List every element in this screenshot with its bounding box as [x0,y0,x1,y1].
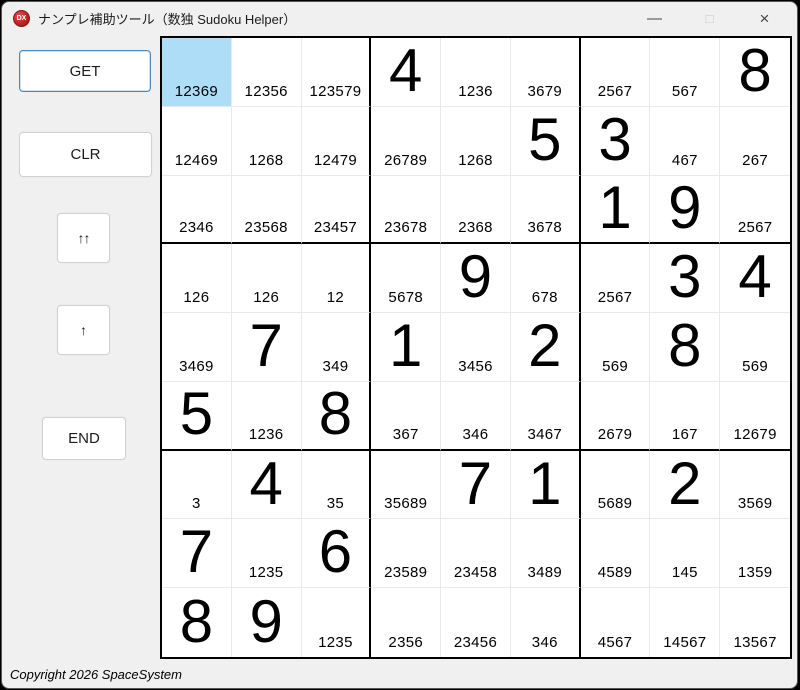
cell-candidates: 23457 [302,219,370,236]
sudoku-cell-r2c8[interactable]: 467 [650,107,720,176]
cell-candidates: 1235 [232,564,301,581]
clear-button[interactable]: CLR [19,132,152,177]
sudoku-cell-r7c7[interactable]: 5689 [581,451,651,520]
cell-candidates: 1236 [232,426,301,443]
cell-solved-digit: 9 [441,244,510,312]
cell-candidates: 3678 [511,219,579,236]
cell-candidates: 35 [302,495,370,512]
sudoku-cell-r7c3[interactable]: 35 [302,451,372,520]
sudoku-cell-r1c3[interactable]: 123579 [302,38,372,107]
cell-candidates: 349 [302,358,370,375]
sudoku-cell-r3c3[interactable]: 23457 [302,176,372,245]
cell-candidates: 4567 [581,634,650,651]
sudoku-cell-r3c1[interactable]: 2346 [162,176,232,245]
cell-solved-digit: 1 [371,313,440,381]
cell-candidates: 3 [162,495,231,512]
sudoku-cell-r9c8[interactable]: 14567 [650,588,720,657]
sudoku-cell-r4c2[interactable]: 126 [232,244,302,313]
sudoku-cell-r8c2[interactable]: 1235 [232,519,302,588]
sudoku-cell-r9c4[interactable]: 2356 [371,588,441,657]
sudoku-cell-r4c7[interactable]: 2567 [581,244,651,313]
cell-candidates: 5678 [371,289,440,306]
sudoku-cell-r1c6[interactable]: 3679 [511,38,581,107]
cell-candidates: 1236 [441,83,510,100]
cell-candidates: 23568 [232,219,301,236]
sudoku-cell-r6c9[interactable]: 12679 [720,382,790,451]
cell-solved-digit: 5 [511,107,579,175]
sudoku-cell-r5c9[interactable]: 569 [720,313,790,382]
sudoku-cell-r9c9[interactable]: 13567 [720,588,790,657]
sudoku-cell-r6c7[interactable]: 2679 [581,382,651,451]
cell-candidates: 23589 [371,564,440,581]
copyright-text: Copyright 2026 SpaceSystem [10,667,182,682]
cell-candidates: 12369 [162,83,231,100]
cell-candidates: 12356 [232,83,301,100]
cell-solved-digit: 4 [371,38,440,106]
sudoku-cell-r9c1[interactable]: 8 [162,588,232,657]
cell-candidates: 23678 [371,219,440,236]
sudoku-cell-r3c9[interactable]: 2567 [720,176,790,245]
cell-solved-digit: 8 [162,588,231,657]
sudoku-cell-r4c1[interactable]: 126 [162,244,232,313]
cell-solved-digit: 7 [441,451,510,519]
sudoku-cell-r2c6[interactable]: 5 [511,107,581,176]
cell-solved-digit: 8 [302,382,370,449]
cell-solved-digit: 8 [650,313,719,381]
cell-candidates: 26789 [371,152,440,169]
cell-solved-digit: 4 [232,451,301,519]
cell-solved-digit: 5 [162,382,231,449]
cell-candidates: 13567 [720,634,790,651]
sudoku-cell-r8c5[interactable]: 23458 [441,519,511,588]
window-controls: — □ × [627,2,792,35]
cell-candidates: 126 [162,289,231,306]
sudoku-cell-r1c7[interactable]: 2567 [581,38,651,107]
cell-solved-digit: 4 [720,244,790,312]
title-bar: DX ナンプレ補助ツール（数独 Sudoku Helper） — □ × [2,2,797,35]
app-icon: DX [13,10,30,27]
cell-candidates: 2356 [371,634,440,651]
sudoku-cell-r8c6[interactable]: 3489 [511,519,581,588]
cell-candidates: 2567 [581,289,650,306]
cell-candidates: 3489 [511,564,579,581]
sudoku-cell-r1c2[interactable]: 12356 [232,38,302,107]
sudoku-cell-r7c2[interactable]: 4 [232,451,302,520]
sudoku-cell-r1c9[interactable]: 8 [720,38,790,107]
cell-candidates: 2679 [581,426,650,443]
window-title: ナンプレ補助ツール（数独 Sudoku Helper） [38,9,296,28]
cell-candidates: 1268 [232,152,301,169]
sudoku-cell-r4c8[interactable]: 3 [650,244,720,313]
cell-solved-digit: 9 [232,588,301,657]
end-button[interactable]: END [42,417,126,460]
sudoku-cell-r3c4[interactable]: 23678 [371,176,441,245]
cell-candidates: 167 [650,426,719,443]
sudoku-cell-r2c7[interactable]: 3 [581,107,651,176]
sudoku-cell-r7c8[interactable]: 2 [650,451,720,520]
cell-candidates: 3456 [441,358,510,375]
cell-candidates: 569 [720,358,790,375]
cell-solved-digit: 2 [511,313,579,381]
sudoku-cell-r7c4[interactable]: 35689 [371,451,441,520]
sudoku-cell-r8c9[interactable]: 1359 [720,519,790,588]
sudoku-cell-r6c5[interactable]: 346 [441,382,511,451]
sudoku-cell-r2c4[interactable]: 26789 [371,107,441,176]
sudoku-cell-r3c5[interactable]: 2368 [441,176,511,245]
sudoku-cell-r6c4[interactable]: 367 [371,382,441,451]
double-up-arrow-button[interactable]: ↑↑ [57,213,110,263]
close-icon[interactable]: × [737,2,792,35]
cell-solved-digit: 7 [232,313,301,381]
cell-candidates: 346 [511,634,579,651]
sudoku-cell-r3c7[interactable]: 1 [581,176,651,245]
cell-candidates: 3469 [162,358,231,375]
sudoku-cell-r1c1[interactable]: 12369 [162,38,232,107]
sudoku-cell-r5c3[interactable]: 349 [302,313,372,382]
cell-candidates: 12679 [720,426,790,443]
cell-candidates: 12 [302,289,370,306]
cell-solved-digit: 3 [581,107,650,175]
cell-candidates: 267 [720,152,790,169]
sudoku-cell-r7c1[interactable]: 3 [162,451,232,520]
sudoku-cell-r2c9[interactable]: 267 [720,107,790,176]
cell-candidates: 678 [511,289,579,306]
cell-solved-digit: 1 [511,451,579,519]
cell-candidates: 14567 [650,634,719,651]
cell-solved-digit: 2 [650,451,719,519]
cell-solved-digit: 6 [302,519,370,587]
sudoku-cell-r4c9[interactable]: 4 [720,244,790,313]
up-arrow-button[interactable]: ↑ [57,305,110,355]
cell-candidates: 1235 [302,634,370,651]
cell-candidates: 1268 [441,152,510,169]
maximize-icon: □ [682,2,737,35]
cell-solved-digit: 1 [581,176,650,243]
sudoku-cell-r9c2[interactable]: 9 [232,588,302,657]
cell-candidates: 12479 [302,152,370,169]
sudoku-cell-r2c3[interactable]: 12479 [302,107,372,176]
cell-candidates: 4589 [581,564,650,581]
cell-candidates: 23458 [441,564,510,581]
sudoku-cell-r2c2[interactable]: 1268 [232,107,302,176]
sudoku-cell-r9c3[interactable]: 1235 [302,588,372,657]
sudoku-cell-r3c6[interactable]: 3678 [511,176,581,245]
sudoku-cell-r6c6[interactable]: 3467 [511,382,581,451]
sudoku-cell-r8c1[interactable]: 7 [162,519,232,588]
cell-candidates: 1359 [720,564,790,581]
cell-solved-digit: 7 [162,519,231,587]
sudoku-cell-r4c5[interactable]: 9 [441,244,511,313]
sudoku-cell-r5c2[interactable]: 7 [232,313,302,382]
sudoku-cell-r7c9[interactable]: 3569 [720,451,790,520]
sudoku-cell-r5c4[interactable]: 1 [371,313,441,382]
sudoku-cell-r1c8[interactable]: 567 [650,38,720,107]
cell-candidates: 346 [441,426,510,443]
sudoku-cell-r2c1[interactable]: 12469 [162,107,232,176]
sudoku-cell-r5c1[interactable]: 3469 [162,313,232,382]
cell-candidates: 3679 [511,83,579,100]
sudoku-cell-r8c3[interactable]: 6 [302,519,372,588]
sudoku-cell-r6c8[interactable]: 167 [650,382,720,451]
sudoku-cell-r7c6[interactable]: 1 [511,451,581,520]
cell-solved-digit: 8 [720,38,790,106]
sudoku-cell-r2c5[interactable]: 1268 [441,107,511,176]
cell-candidates: 2346 [162,219,231,236]
sudoku-cell-r4c6[interactable]: 678 [511,244,581,313]
cell-candidates: 567 [650,83,719,100]
sudoku-cell-r5c7[interactable]: 569 [581,313,651,382]
sudoku-cell-r8c7[interactable]: 4589 [581,519,651,588]
sudoku-cell-r9c6[interactable]: 346 [511,588,581,657]
sudoku-cell-r3c8[interactable]: 9 [650,176,720,245]
sudoku-cell-r5c5[interactable]: 3456 [441,313,511,382]
app-window: DX ナンプレ補助ツール（数独 Sudoku Helper） — □ × GET… [1,1,798,689]
sudoku-cell-r8c8[interactable]: 145 [650,519,720,588]
cell-solved-digit: 3 [650,244,719,312]
sudoku-cell-r8c4[interactable]: 23589 [371,519,441,588]
sudoku-cell-r6c2[interactable]: 1236 [232,382,302,451]
sudoku-cell-r9c5[interactable]: 23456 [441,588,511,657]
sudoku-cell-r4c4[interactable]: 5678 [371,244,441,313]
sudoku-grid: 1236912356123579412363679256756781246912… [160,36,792,659]
cell-candidates: 123579 [302,83,370,100]
cell-candidates: 367 [371,426,440,443]
cell-candidates: 467 [650,152,719,169]
sudoku-cell-r6c1[interactable]: 5 [162,382,232,451]
sudoku-cell-r6c3[interactable]: 8 [302,382,372,451]
cell-candidates: 23456 [441,634,510,651]
cell-candidates: 35689 [371,495,440,512]
sudoku-cell-r4c3[interactable]: 12 [302,244,372,313]
cell-candidates: 2567 [720,219,790,236]
sudoku-cell-r1c4[interactable]: 4 [371,38,441,107]
cell-candidates: 145 [650,564,719,581]
cell-candidates: 569 [581,358,650,375]
cell-candidates: 3569 [720,495,790,512]
minimize-icon[interactable]: — [627,2,682,35]
cell-candidates: 3467 [511,426,579,443]
sudoku-cell-r1c5[interactable]: 1236 [441,38,511,107]
cell-candidates: 2567 [581,83,650,100]
cell-candidates: 12469 [162,152,231,169]
get-button[interactable]: GET [19,50,151,92]
sudoku-cell-r5c8[interactable]: 8 [650,313,720,382]
sudoku-cell-r7c5[interactable]: 7 [441,451,511,520]
cell-candidates: 5689 [581,495,650,512]
cell-candidates: 2368 [441,219,510,236]
sudoku-cell-r9c7[interactable]: 4567 [581,588,651,657]
cell-candidates: 126 [232,289,301,306]
sudoku-cell-r5c6[interactable]: 2 [511,313,581,382]
sudoku-cell-r3c2[interactable]: 23568 [232,176,302,245]
cell-solved-digit: 9 [650,176,719,243]
